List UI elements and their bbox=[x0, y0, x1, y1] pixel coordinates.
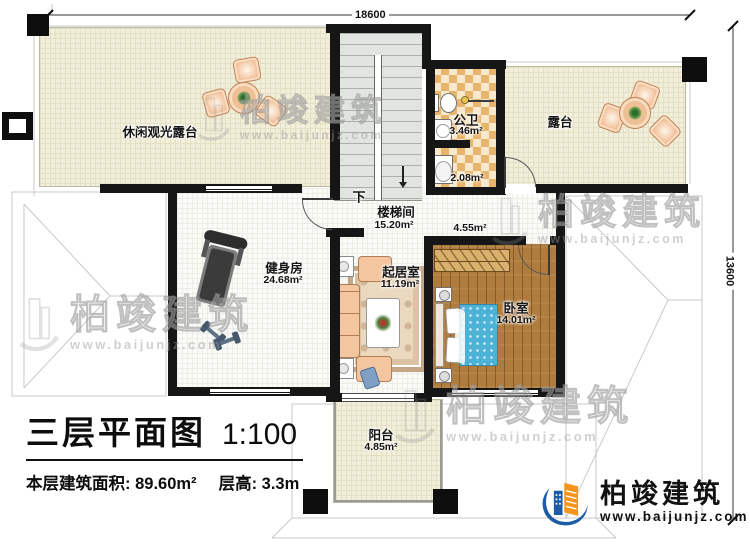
bathroom-door-leaf bbox=[468, 100, 494, 102]
plan-title: 三层平面图 bbox=[26, 406, 206, 454]
wall bbox=[424, 236, 433, 397]
wall bbox=[326, 24, 430, 33]
dimension-right: 13600 bbox=[723, 253, 735, 290]
floor-area-value: 89.60m² bbox=[135, 475, 196, 493]
column bbox=[682, 57, 707, 82]
coffee-table bbox=[366, 298, 400, 348]
wall bbox=[426, 60, 435, 195]
floor-height-value: 3.3m bbox=[262, 475, 300, 493]
balcony-sliding-door bbox=[342, 393, 414, 402]
room-area-balcony: 4.85m² bbox=[364, 441, 397, 453]
wall bbox=[428, 60, 506, 69]
window bbox=[452, 388, 538, 397]
room-label-stairwell: 楼梯间 bbox=[377, 202, 415, 221]
logo-building-icon bbox=[540, 474, 592, 530]
floor-plan-canvas: 18600 13600 bbox=[0, 0, 750, 546]
window bbox=[210, 387, 290, 396]
room-area-stairwell: 15.20m² bbox=[374, 219, 413, 231]
patio-table bbox=[619, 97, 651, 129]
room-area-bath-lobby: 2.08m² bbox=[450, 172, 483, 184]
plan-title-row: 三层平面图 1:100 bbox=[26, 406, 303, 461]
window bbox=[206, 184, 272, 193]
floor-area-label: 本层建筑面积: bbox=[26, 475, 131, 493]
plan-scale: 1:100 bbox=[222, 418, 297, 452]
column bbox=[433, 489, 458, 514]
wall bbox=[272, 184, 302, 193]
wall bbox=[556, 188, 565, 243]
nightstand bbox=[435, 287, 452, 302]
column bbox=[2, 112, 33, 140]
logo-brand-text: 柏竣建筑 bbox=[600, 480, 749, 508]
wall bbox=[100, 184, 206, 193]
title-block: 三层平面图 1:100 本层建筑面积: 89.60m² 层高: 3.3m bbox=[26, 406, 303, 494]
room-area-gym: 24.68m² bbox=[263, 274, 302, 286]
wall bbox=[424, 236, 526, 245]
room-area-hall: 4.55m² bbox=[453, 222, 486, 234]
patio-chair bbox=[232, 56, 262, 84]
room-area-living: 11.19m² bbox=[381, 278, 420, 290]
room-label-terrace-top-left: 休闲观光露台 bbox=[122, 122, 197, 141]
wall bbox=[330, 24, 340, 200]
floor-height-label: 层高: bbox=[219, 475, 258, 493]
wall bbox=[428, 187, 506, 195]
bedroom-door-leaf bbox=[548, 245, 550, 275]
dimension-top: 18600 bbox=[352, 9, 389, 21]
company-logo: 柏竣建筑 www.baijunjz.com bbox=[540, 474, 749, 530]
plan-info-row: 本层建筑面积: 89.60m² 层高: 3.3m bbox=[26, 470, 303, 494]
wall bbox=[556, 236, 565, 397]
floor-area-info: 本层建筑面积: 89.60m² bbox=[26, 470, 197, 494]
double-bed bbox=[435, 303, 498, 367]
stair-stringer bbox=[374, 55, 382, 200]
column bbox=[27, 14, 49, 36]
logo-site-text: www.baijunjz.com bbox=[600, 509, 749, 524]
patio-table bbox=[228, 82, 260, 114]
room-label-terrace-right: 露台 bbox=[547, 112, 572, 131]
room-area-bathroom: 3.46m² bbox=[449, 125, 482, 137]
column bbox=[303, 489, 328, 514]
floor-terrace-top-left bbox=[40, 28, 332, 186]
wardrobe bbox=[434, 249, 510, 272]
wall bbox=[168, 184, 177, 396]
nightstand bbox=[435, 368, 452, 383]
stair-direction-arrow-icon bbox=[402, 166, 404, 184]
room-area-bedroom: 14.01m² bbox=[496, 314, 535, 326]
floor-height-info: 层高: 3.3m bbox=[219, 470, 300, 494]
stairs-down-label: 下 bbox=[352, 187, 365, 206]
wall bbox=[330, 230, 340, 402]
